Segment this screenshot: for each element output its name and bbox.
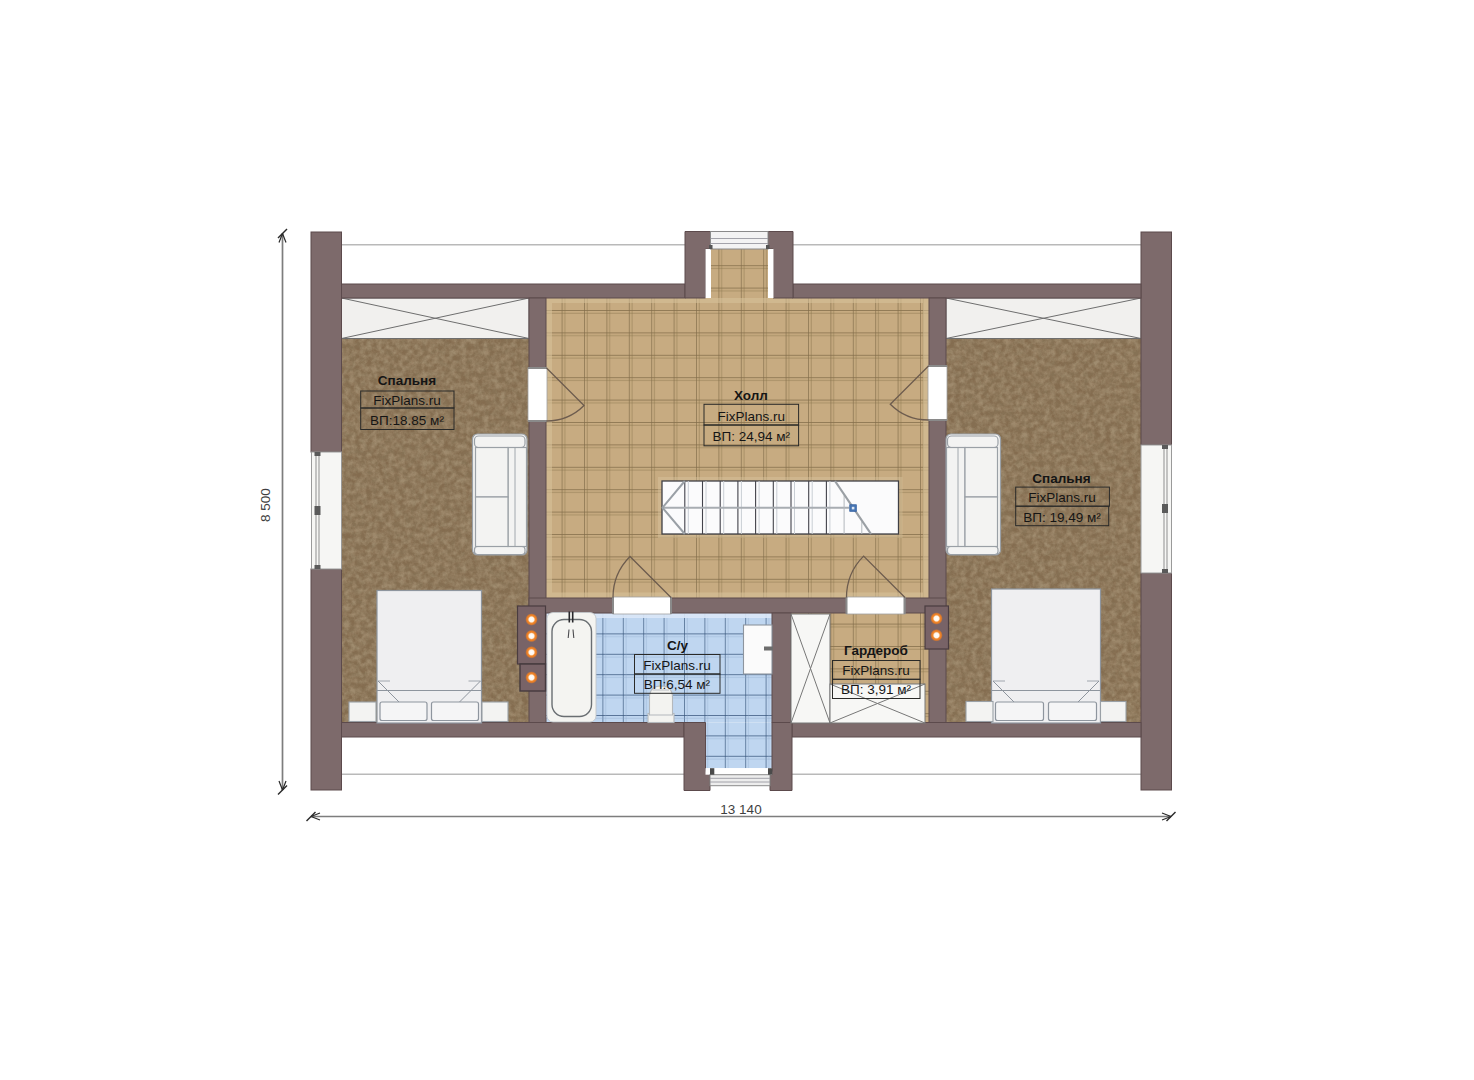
- svg-text:Спальня: Спальня: [1032, 471, 1090, 486]
- svg-text:ВП: 19,49 м²: ВП: 19,49 м²: [1023, 510, 1101, 525]
- svg-text:FixPlans.ru: FixPlans.ru: [643, 658, 711, 673]
- svg-text:Холл: Холл: [734, 388, 768, 403]
- svg-text:FixPlans.ru: FixPlans.ru: [842, 663, 910, 678]
- svg-text:13 140: 13 140: [720, 802, 761, 817]
- svg-text:FixPlans.ru: FixPlans.ru: [718, 409, 786, 424]
- svg-text:С/у: С/у: [667, 638, 689, 653]
- svg-text:ВП: 3,91 м²: ВП: 3,91 м²: [841, 682, 912, 697]
- svg-text:Спальня: Спальня: [378, 373, 436, 388]
- svg-text:ВП: 24,94 м²: ВП: 24,94 м²: [713, 429, 791, 444]
- svg-text:ВП:6,54 м²: ВП:6,54 м²: [644, 677, 711, 692]
- svg-text:ВП:18.85 м²: ВП:18.85 м²: [370, 413, 444, 428]
- svg-text:8 500: 8 500: [258, 488, 273, 522]
- svg-text:Гардероб: Гардероб: [844, 643, 908, 658]
- svg-text:FixPlans.ru: FixPlans.ru: [373, 393, 441, 408]
- svg-text:FixPlans.ru: FixPlans.ru: [1028, 490, 1096, 505]
